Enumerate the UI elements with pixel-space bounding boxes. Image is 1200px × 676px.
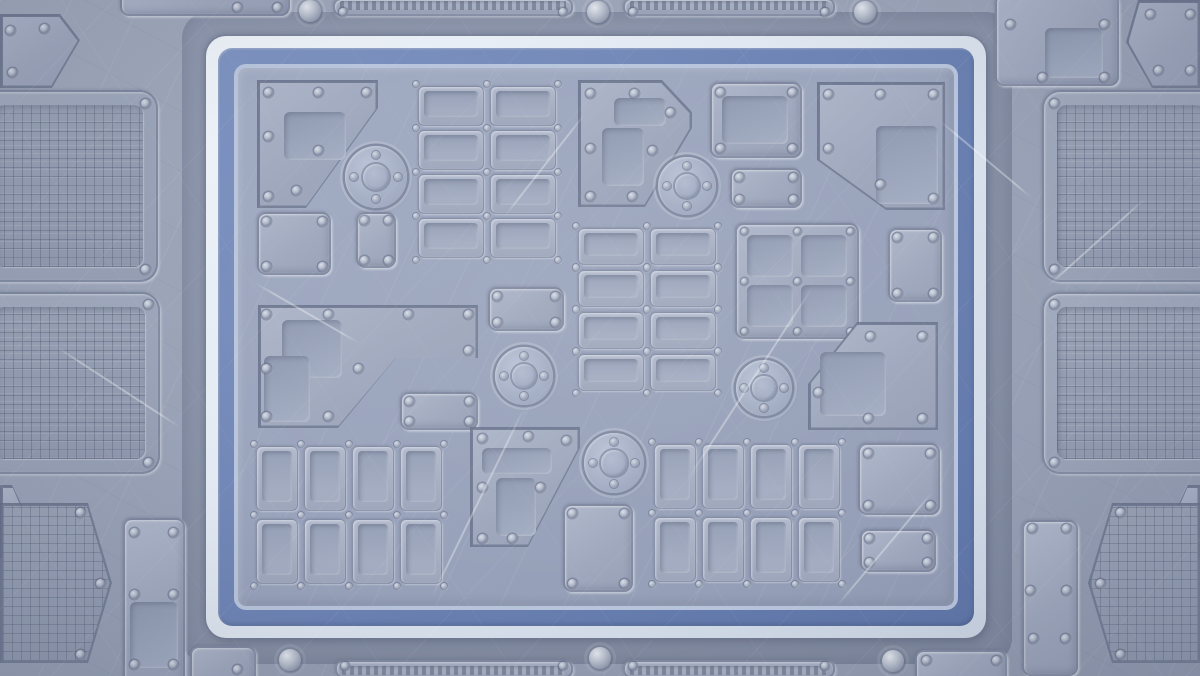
scratch-line (255, 282, 360, 344)
scene (0, 0, 1200, 676)
scratch-line (835, 491, 933, 607)
scratch-line (504, 113, 586, 217)
scratch-line (54, 345, 181, 428)
decor-layer (0, 0, 1200, 676)
scratch-line (939, 120, 1032, 199)
scratch-line (1047, 198, 1145, 286)
scratch-line (431, 408, 525, 598)
scratch-line (687, 286, 814, 480)
